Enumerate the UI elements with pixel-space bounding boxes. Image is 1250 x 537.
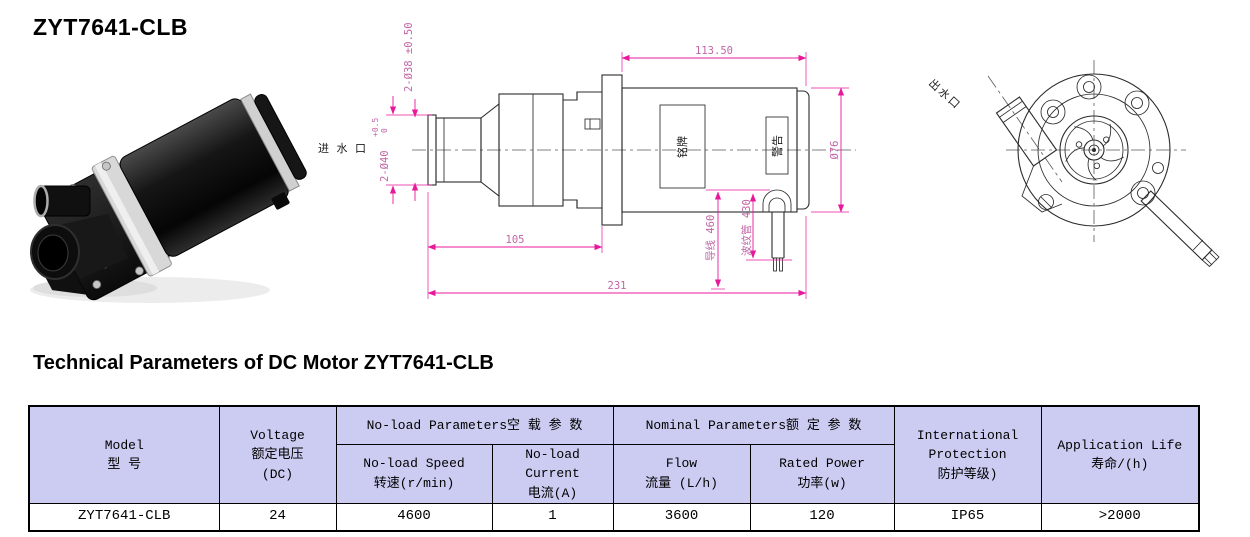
outlet-pipe (997, 97, 1063, 212)
dimension-annotations: 2-Ø38 ±0.50 2-Ø40 +0.5 0 进 水 口 113.50 Ø7… (318, 22, 849, 299)
header-protection: International Protection 防护等级) (894, 406, 1041, 504)
page-title: ZYT7641-CLB (33, 14, 188, 41)
cell-life: >2000 (1041, 504, 1199, 531)
cell-flow: 3600 (613, 504, 750, 531)
header-flow: Flow 流量 (L/h) (613, 444, 750, 504)
header-noload-group: No-load Parameters空 载 参 数 (336, 406, 613, 444)
dim-port-40-tol-lower: 0 (380, 128, 389, 133)
photo-inlet-port (35, 186, 91, 216)
dim-total-length: 231 (608, 280, 627, 292)
bolt-holes (1048, 82, 1164, 199)
product-photo (10, 79, 316, 321)
inlet-label: 进 水 口 (318, 142, 368, 155)
outlet-label: 出水口 (926, 76, 964, 113)
front-view-drawing: 出水口 (926, 60, 1219, 267)
cell-protection: IP65 (894, 504, 1041, 531)
flange-ears (1041, 75, 1155, 205)
cell-current: 1 (492, 504, 613, 531)
cell-power: 120 (750, 504, 894, 531)
header-noload-speed: No-load Speed 转速(r/min) (336, 444, 492, 504)
cell-voltage: 24 (219, 504, 336, 531)
dim-port-40-tol-upper: +0.5 (371, 118, 380, 137)
screw-heads (38, 161, 163, 301)
dim-port-38: 2-Ø38 ±0.50 (403, 22, 415, 92)
header-noload-current: No-load Current 电流(A) (492, 444, 613, 504)
header-voltage: Voltage 额定电压 (DC) (219, 406, 336, 504)
header-rated-power: Rated Power 功率(w) (750, 444, 894, 504)
header-application-life: Application Life 寿命/(h) (1041, 406, 1199, 504)
dim-motor-diameter: Ø76 (829, 141, 841, 160)
nameplate-label: 铭牌 (675, 136, 689, 158)
parameters-table: Model 型 号 Voltage 额定电压 (DC) No-load Para… (28, 405, 1200, 532)
section-heading: Technical Parameters of DC Motor ZYT7641… (33, 352, 494, 375)
dim-corrugated-tube: 波纹管 430 (740, 199, 753, 256)
dim-port-40: 2-Ø40 (379, 150, 391, 182)
warning-label: 警告 (770, 135, 784, 157)
header-model: Model 型 号 (29, 406, 219, 504)
cell-model: ZYT7641-CLB (29, 504, 219, 531)
photo-outlet-port (31, 214, 128, 279)
cell-speed: 4600 (336, 504, 492, 531)
dim-lead-wire: 导线 460 (704, 215, 717, 261)
dim-pump-length: 105 (506, 234, 525, 246)
dim-motor-length: 113.50 (695, 45, 733, 57)
table-row: ZYT7641-CLB 24 4600 1 3600 120 IP65 >200… (29, 504, 1199, 531)
cable (1141, 191, 1219, 267)
impeller (1065, 124, 1124, 181)
side-view-drawing: 铭牌 警告 2-Ø38 ±0.50 2-Ø40 +0.5 0 进 水 口 113… (318, 22, 856, 299)
header-nominal-group: Nominal Parameters额 定 参 数 (613, 406, 894, 444)
